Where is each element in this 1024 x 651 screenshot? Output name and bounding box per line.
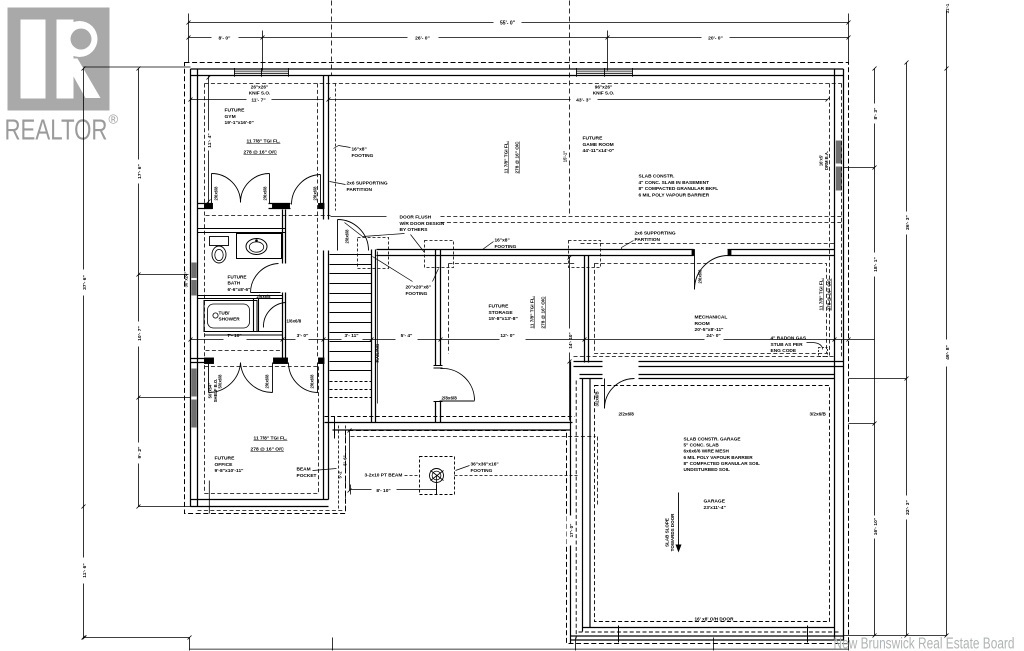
svg-text:3'- 0": 3'- 0"	[297, 333, 309, 339]
svg-text:278 @ 16" O/C: 278 @ 16" O/C	[251, 447, 285, 453]
svg-text:8'- 10": 8'- 10"	[376, 488, 390, 494]
svg-text:SLAB CONSTR.4" CONC. SLAB IN B: SLAB CONSTR.4" CONC. SLAB IN BASEMENT8" …	[639, 174, 719, 199]
svg-text:BEAMPOCKET: BEAMPOCKET	[297, 467, 317, 479]
svg-text:FUTURESTORAGE15'-8"x13'-8": FUTURESTORAGE15'-8"x13'-8"	[489, 304, 518, 323]
svg-text:16'- 10": 16'- 10"	[873, 518, 879, 535]
svg-text:2/6x6/8: 2/6x6/8	[313, 186, 318, 201]
svg-text:10'- 7": 10'- 7"	[137, 326, 143, 341]
svg-text:2x6 SUPPORTINGPARTITION: 2x6 SUPPORTINGPARTITION	[635, 231, 676, 243]
svg-text:11'- 4": 11'- 4"	[207, 133, 213, 147]
svg-text:FUTUREBATH6'-6"x8'-6": FUTUREBATH6'-6"x8'-6"	[228, 275, 251, 292]
svg-text:30"x24": 30"x24"	[184, 272, 189, 288]
svg-text:16"x8"FOOTING: 16"x8"FOOTING	[352, 147, 374, 159]
svg-text:2/6x6/8: 2/6x6/8	[257, 294, 272, 299]
svg-text:5'-2: 5'-2	[338, 471, 343, 479]
svg-text:®: ®	[109, 112, 119, 127]
svg-text:17'- 0": 17'- 0"	[569, 524, 574, 538]
svg-text:SLAB SLOPETOWARDS DOOR: SLAB SLOPETOWARDS DOOR	[665, 513, 676, 551]
svg-text:12'- 0": 12'- 0"	[500, 333, 514, 339]
svg-text:11 7/8" TGI FL.: 11 7/8" TGI FL.	[247, 139, 281, 145]
svg-text:278 @ 16" O/C: 278 @ 16" O/C	[515, 141, 520, 174]
svg-text:DOOR FLUSHW/R DOOR DESIGNBY OT: DOOR FLUSHW/R DOOR DESIGNBY OTHERS	[400, 215, 445, 234]
svg-text:50"x54"SHELF B.O.: 50"x54"SHELF B.O.	[208, 379, 219, 403]
svg-text:9'- 2": 9'- 2"	[137, 447, 143, 459]
svg-text:FUTUREGYM19'-1"x16'-0": FUTUREGYM19'-1"x16'-0"	[225, 108, 254, 127]
svg-text:11'- 7": 11'- 7"	[251, 98, 265, 104]
svg-text:New Brunswick Real Estate Boar: New Brunswick Real Estate Board	[834, 636, 1015, 651]
svg-text:11 7/8" TGI FL.: 11 7/8" TGI FL.	[254, 436, 288, 442]
svg-text:278 @ 16" O/C: 278 @ 16" O/C	[541, 296, 546, 329]
svg-text:49'- 8": 49'- 8"	[945, 345, 951, 360]
svg-text:3'- 11": 3'- 11"	[344, 333, 358, 339]
svg-text:20'- 0": 20'- 0"	[708, 36, 723, 42]
svg-text:11'- 6": 11'- 6"	[82, 563, 88, 577]
svg-text:18'- 1": 18'- 1"	[873, 257, 879, 272]
svg-text:11 7/8" TGI FL.: 11 7/8" TGI FL.	[504, 141, 509, 173]
svg-text:22'- 3": 22'- 3"	[905, 500, 911, 515]
svg-text:16"x8"FOOTING: 16"x8"FOOTING	[495, 238, 517, 250]
svg-text:2/6x6/8: 2/6x6/8	[214, 186, 219, 201]
svg-text:26"x26"KNIF S.O.: 26"x26"KNIF S.O.	[249, 85, 271, 96]
svg-text:TUB/SHOWER: TUB/SHOWER	[219, 311, 241, 322]
svg-text:2/8x6/8: 2/8x6/8	[442, 396, 458, 401]
svg-text:278 @ 16" O/C: 278 @ 16" O/C	[827, 278, 832, 311]
svg-text:278 @ 16" O/C: 278 @ 16" O/C	[244, 150, 278, 156]
svg-text:3/2x6/B: 3/2x6/B	[810, 412, 827, 417]
svg-text:1/6x6/8: 1/6x6/8	[287, 319, 302, 324]
svg-text:2/6x6/8: 2/6x6/8	[263, 186, 268, 201]
svg-text:3/2x6/B: 3/2x6/B	[595, 391, 600, 406]
svg-text:5'- 6": 5'- 6"	[343, 455, 348, 465]
svg-text:4" RADON GASSTUB AS PERENG COD: 4" RADON GASSTUB AS PERENG CODE	[771, 336, 807, 355]
svg-text:7'- 10": 7'- 10"	[227, 333, 241, 339]
svg-text:16'x5'DRM B.A.: 16'x5'DRM B.A.	[819, 151, 830, 170]
svg-text:37'- 6": 37'- 6"	[82, 275, 88, 290]
svg-text:5/0x6/8: 5/0x6/8	[218, 374, 223, 389]
svg-text:24'- 0": 24'- 0"	[706, 333, 720, 339]
svg-text:26'- 3": 26'- 3"	[905, 215, 911, 230]
svg-text:11 7/8" TGI FL.: 11 7/8" TGI FL.	[819, 278, 824, 310]
svg-text:2/8x6/8: 2/8x6/8	[345, 229, 350, 244]
svg-text:GARAGE23'x11'-4": GARAGE23'x11'-4"	[704, 499, 726, 511]
svg-text:36"x36"x16"FOOTING: 36"x36"x16"FOOTING	[471, 462, 499, 474]
svg-text:2/6x6/8: 2/6x6/8	[698, 269, 703, 284]
svg-text:2x6 SUPPORTINGPARTITION: 2x6 SUPPORTINGPARTITION	[347, 181, 388, 193]
svg-text:2/6x6/8: 2/6x6/8	[265, 374, 270, 389]
svg-text:26'- 0": 26'- 0"	[415, 36, 430, 42]
svg-text:8'- 3": 8'- 3"	[873, 108, 879, 120]
svg-text:96"x26"KNIF S.O.: 96"x26"KNIF S.O.	[593, 85, 615, 96]
svg-text:16' x8' O/H DOOR: 16' x8' O/H DOOR	[695, 617, 735, 622]
svg-text:55'- 0": 55'- 0"	[500, 21, 516, 27]
svg-text:5'- 4": 5'- 4"	[401, 333, 413, 339]
svg-text:20"x20"x8"FOOTING: 20"x20"x8"FOOTING	[406, 285, 432, 297]
svg-text:FUTUREOFFICE9'-8"x10'-11": FUTUREOFFICE9'-8"x10'-11"	[215, 456, 244, 475]
svg-text:3-2x10 PT BEAM: 3-2x10 PT BEAM	[365, 473, 403, 479]
svg-text:43'- 3": 43'- 3"	[576, 98, 591, 104]
svg-text:2/6x6/8: 2/6x6/8	[310, 374, 315, 389]
svg-text:SLAB CONSTR. GARAGE5" CONC. SL: SLAB CONSTR. GARAGE5" CONC. SLAB6x6x6/6 …	[684, 437, 760, 473]
svg-text:RAILING: RAILING	[375, 343, 380, 362]
svg-text:31'-1: 31'-1	[945, 3, 950, 13]
svg-text:MECHANICALROOM20'-5"x8'-11": MECHANICALROOM20'-5"x8'-11"	[695, 315, 728, 334]
svg-text:REALTOR: REALTOR	[5, 115, 108, 147]
svg-text:11 7/8" TGI FL.: 11 7/8" TGI FL.	[530, 296, 535, 328]
svg-text:15'-1": 15'-1"	[563, 151, 568, 162]
svg-text:8'- 0": 8'- 0"	[219, 36, 231, 42]
svg-text:2/2x6/8: 2/2x6/8	[619, 412, 635, 417]
svg-text:14'- 10": 14'- 10"	[568, 332, 573, 348]
svg-text:FUTUREGAME ROOM44'-11"x14'-0": FUTUREGAME ROOM44'-11"x14'-0"	[583, 136, 615, 155]
svg-text:17'- 6": 17'- 6"	[137, 164, 143, 179]
